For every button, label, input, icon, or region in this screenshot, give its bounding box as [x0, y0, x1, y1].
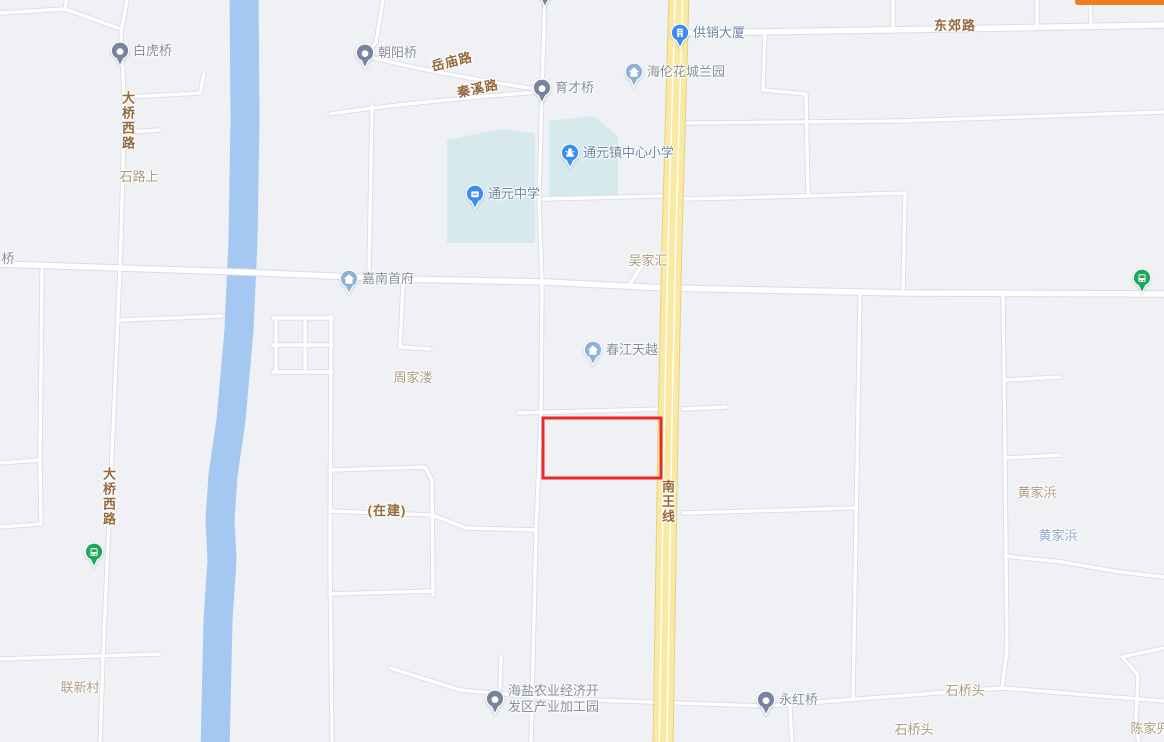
yucaiqiao-marker-label: 育才桥: [555, 80, 594, 96]
bus-icon: [84, 543, 104, 570]
cut-off-action-button[interactable]: [1075, 0, 1164, 5]
map-background: [0, 0, 1164, 742]
building-icon: [670, 24, 690, 51]
hailun-huacheng-lanyuan-marker-label: 海伦花城兰园: [647, 64, 725, 80]
gongxiao-dasha-marker-label: 供销大厦: [693, 25, 745, 41]
house-icon: [583, 341, 603, 368]
map-root[interactable]: 大桥西路石路上岳庙路秦溪路东郊路吴家汇周家溇(在建)南王线大桥西路黄家浜黄家浜联…: [0, 0, 1164, 742]
bus-icon: [1132, 269, 1152, 296]
school-book-icon: [465, 185, 485, 212]
jianan-shoufu-marker-label: 嘉南首府: [362, 271, 414, 287]
basemap-canvas: [0, 0, 1164, 742]
house-icon: [624, 63, 644, 90]
student-icon: [560, 144, 580, 171]
bridge-dot-icon: [110, 42, 130, 69]
bridge-dot-icon: [485, 690, 505, 717]
haiyan-agri-industrial-park-marker-label: 海盐农业经济开发区产业加工园: [508, 683, 599, 715]
chunjiang-tianyue-marker-label: 春江天越: [606, 342, 658, 358]
bridge-dot-icon: [355, 44, 375, 71]
bridge-dot-icon: [756, 691, 776, 718]
bridge-dot-icon: [532, 79, 552, 106]
chaoyangqiao-marker-label: 朝阳桥: [378, 45, 417, 61]
house-icon: [339, 270, 359, 297]
bridge-dot-icon: [535, 0, 555, 10]
tongyuan-zhongxue-marker-label: 通元中学: [488, 186, 540, 202]
tongyuanzhen-zhongxin-xiaoxue-marker-label: 通元镇中心小学: [583, 145, 674, 161]
baihuqiao-marker-label: 白虎桥: [133, 43, 172, 59]
yonghongqiao-marker-label: 永红桥: [779, 692, 818, 708]
